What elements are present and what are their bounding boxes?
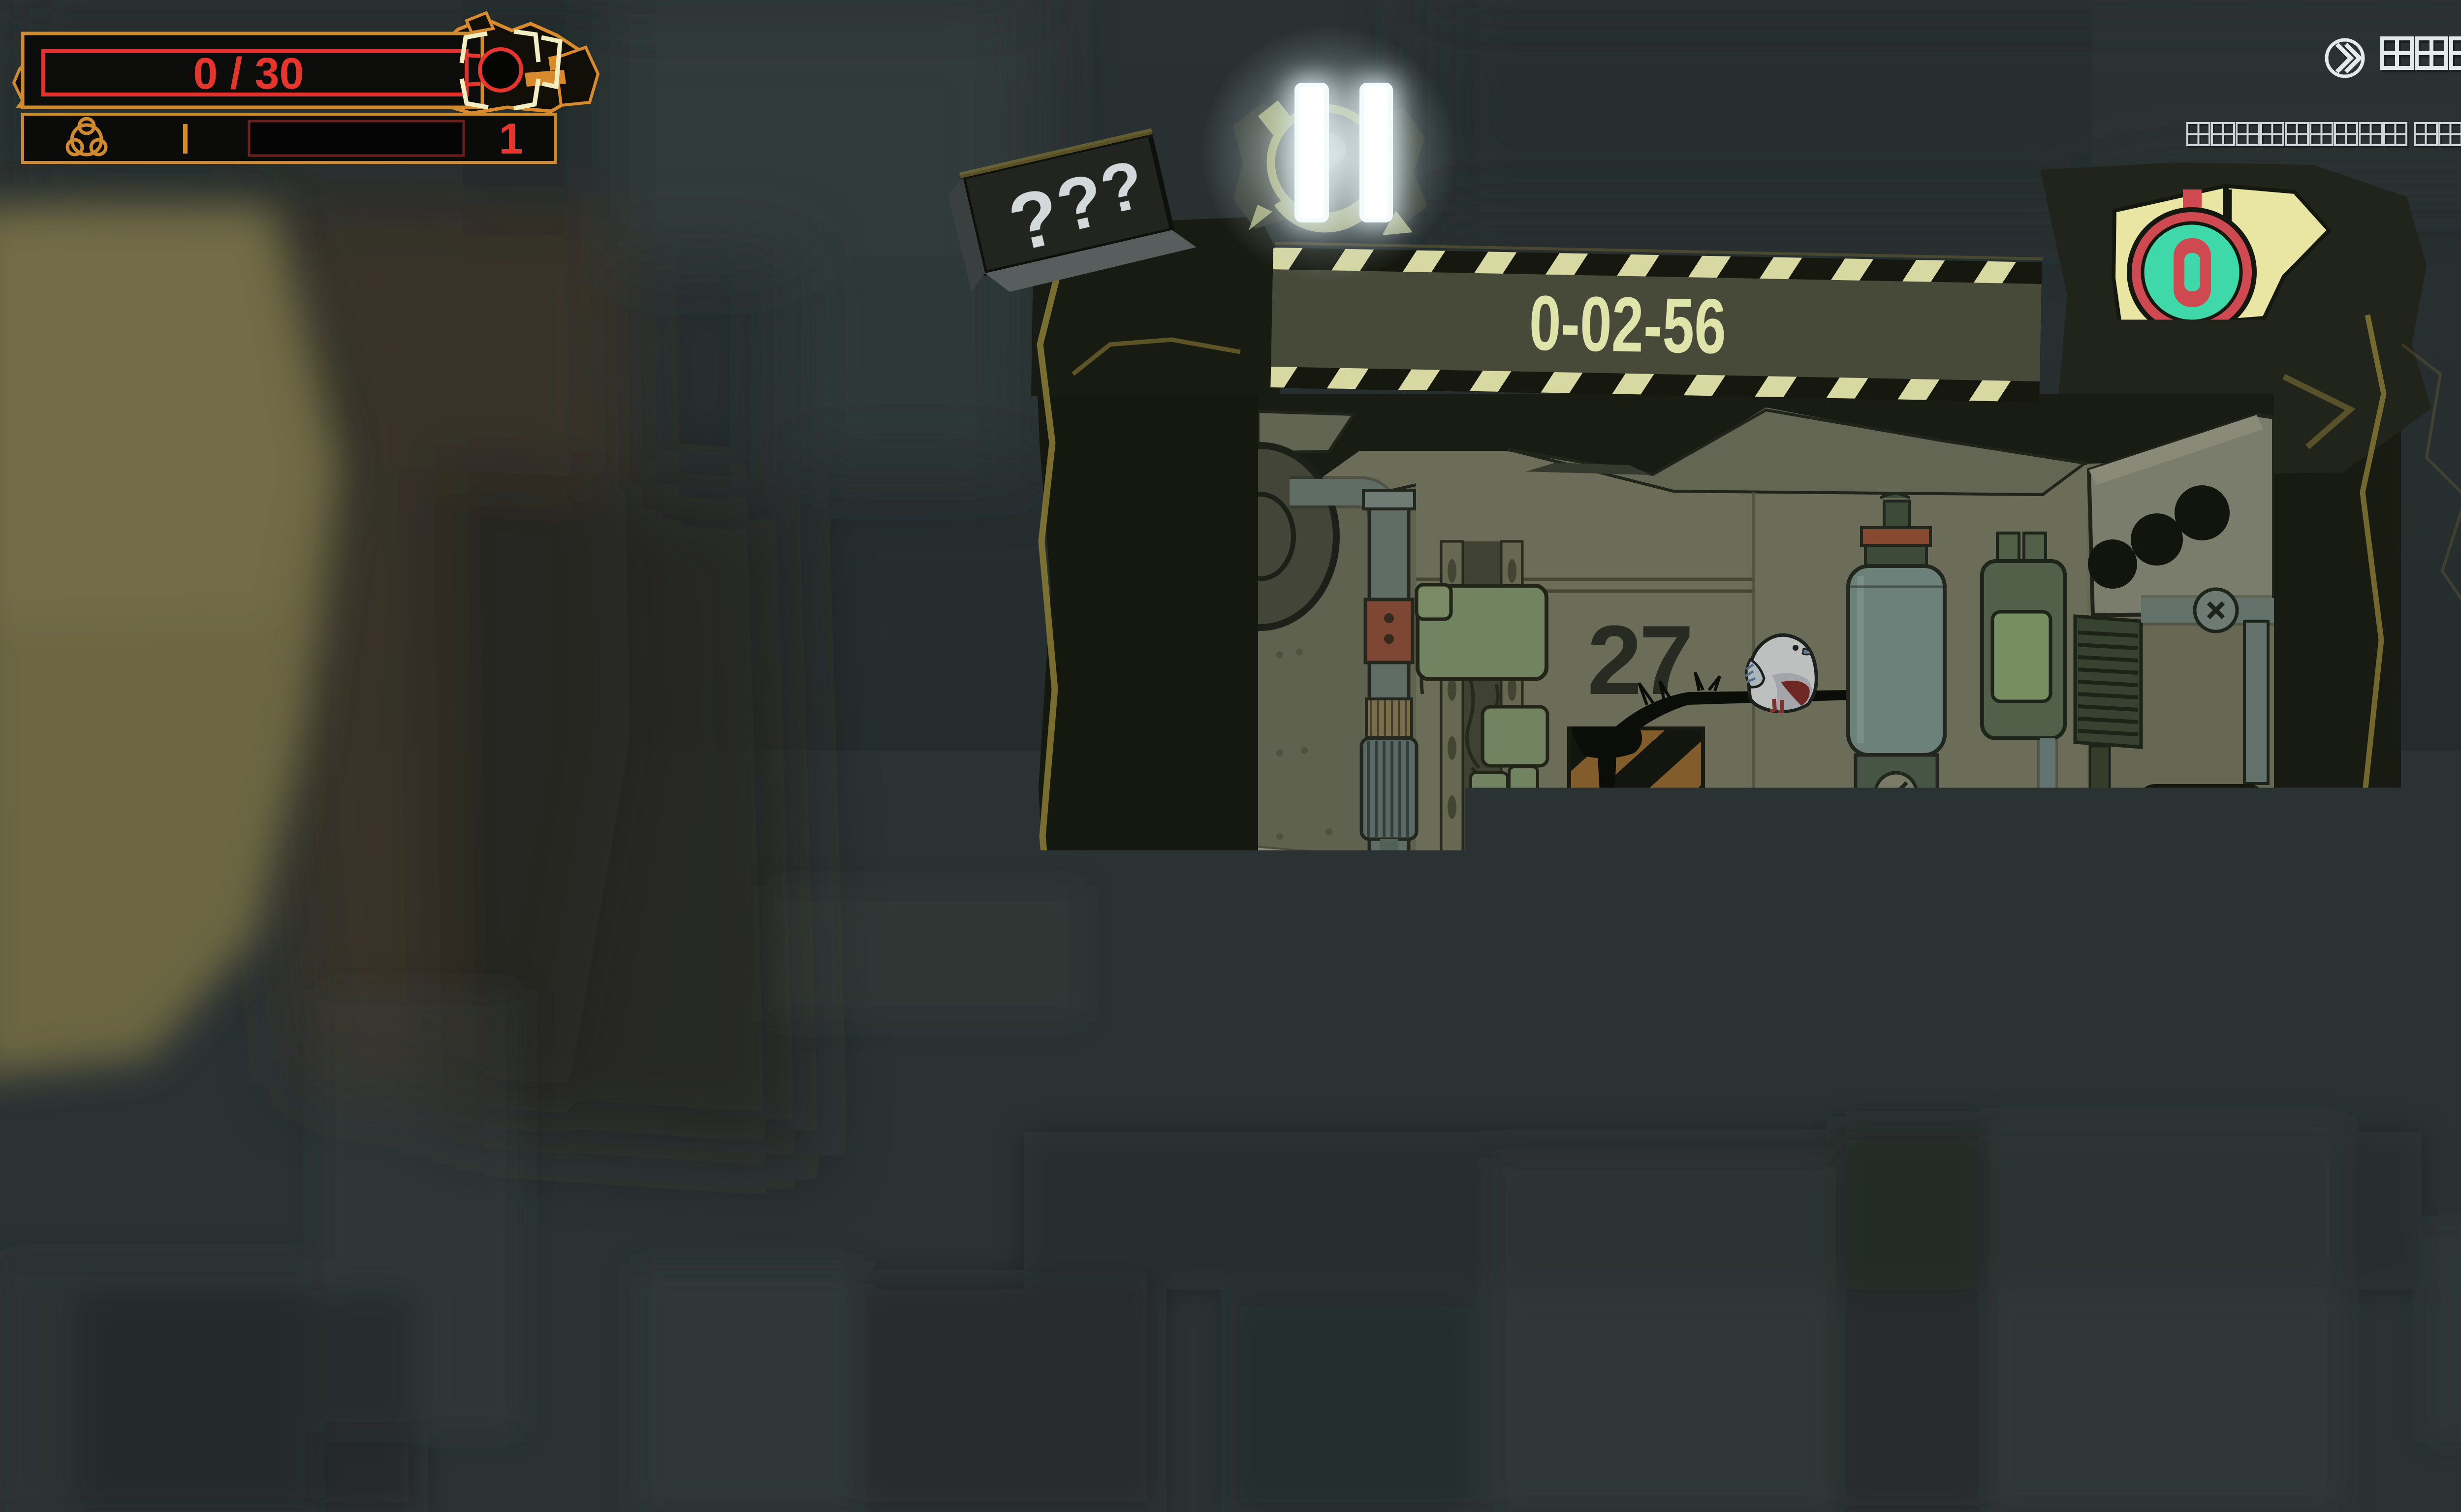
svg-text:1: 1 — [499, 114, 523, 163]
svg-text:0-02-56: 0-02-56 — [1528, 280, 1727, 370]
svg-text:0 / 30: 0 / 30 — [193, 49, 304, 98]
